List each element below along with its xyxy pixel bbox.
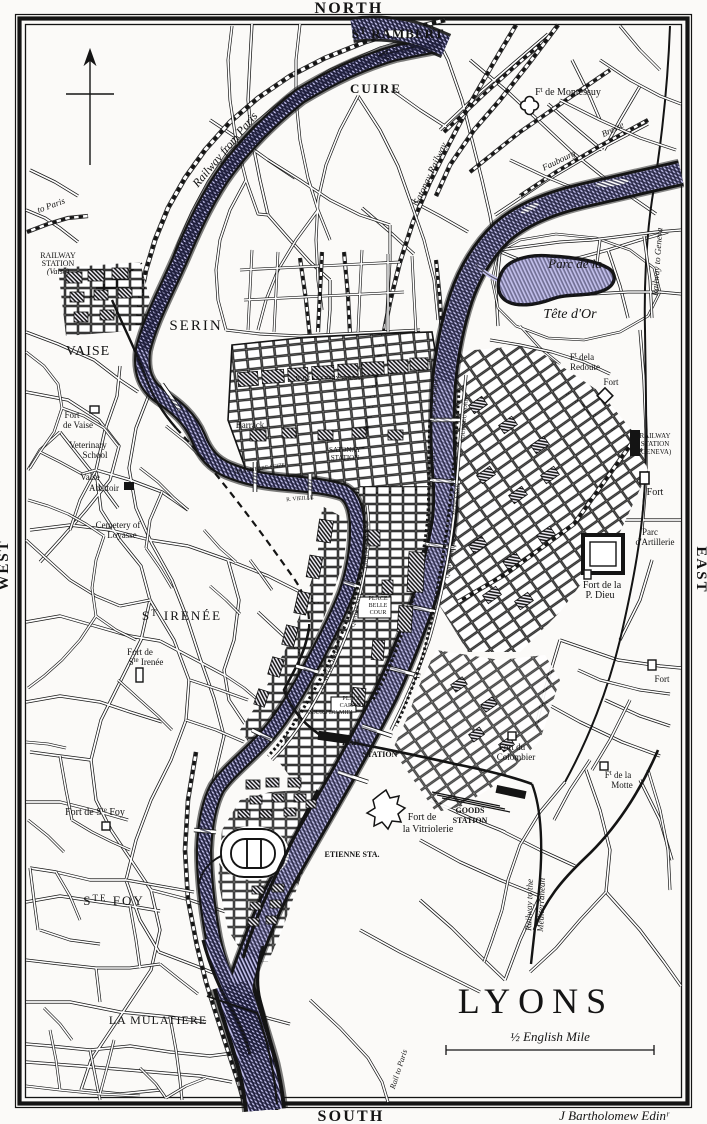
- svg-text:Ft de Montessuy: Ft de Montessuy: [535, 86, 601, 98]
- svg-text:CARNOT: CARNOT: [340, 703, 365, 709]
- svg-text:Redoute: Redoute: [570, 362, 600, 372]
- svg-text:Loyasse: Loyasse: [107, 530, 137, 540]
- svg-text:LYONS: LYONS: [458, 981, 614, 1021]
- svg-text:Fort: Fort: [603, 377, 619, 387]
- svg-text:STATION: STATION: [641, 440, 670, 448]
- svg-text:Cemetery of: Cemetery of: [96, 520, 141, 530]
- svg-text:Tête d'Or: Tête d'Or: [543, 307, 597, 322]
- svg-text:STE FOY: STE FOY: [83, 893, 145, 908]
- svg-text:Fort: Fort: [647, 487, 664, 498]
- svg-text:Fort du: Fort du: [499, 742, 526, 752]
- svg-text:Parc de la: Parc de la: [547, 256, 602, 271]
- svg-text:GOODS: GOODS: [456, 806, 485, 815]
- svg-text:Fort de: Fort de: [127, 647, 153, 657]
- svg-text:Motte: Motte: [611, 780, 633, 790]
- svg-text:WEST: WEST: [0, 539, 12, 590]
- svg-text:Ft de la: Ft de la: [605, 769, 631, 780]
- svg-text:STATION: STATION: [453, 816, 488, 825]
- svg-text:Fort: Fort: [654, 674, 670, 684]
- svg-text:COUR: COUR: [370, 610, 387, 616]
- svg-text:Parc: Parc: [642, 527, 658, 537]
- svg-text:SOUTH: SOUTH: [317, 1108, 384, 1124]
- svg-text:de Vaise: de Vaise: [63, 420, 93, 430]
- svg-text:Fort: Fort: [64, 410, 80, 420]
- svg-text:RAILWAY: RAILWAY: [639, 432, 670, 440]
- svg-text:SERIN: SERIN: [169, 318, 222, 334]
- svg-text:Fort de Ste Foy: Fort de Ste Foy: [65, 806, 125, 818]
- svg-text:Mediterranean: Mediterranean: [535, 877, 547, 933]
- svg-text:Ft dela: Ft dela: [570, 351, 594, 362]
- svg-text:½ English Mile: ½ English Mile: [510, 1029, 590, 1044]
- svg-text:(Vaise): (Vaise): [47, 267, 70, 276]
- svg-text:Railway to the: Railway to the: [523, 879, 535, 932]
- svg-text:CUIRE: CUIRE: [350, 81, 402, 96]
- svg-text:VAISE: VAISE: [66, 344, 110, 359]
- svg-text:Barrack: Barrack: [236, 420, 265, 430]
- svg-text:d'Artillerie: d'Artillerie: [635, 537, 674, 547]
- svg-text:SATONAY: SATONAY: [329, 446, 361, 454]
- svg-text:BELLE: BELLE: [369, 603, 388, 609]
- svg-text:LA MULATIERE: LA MULATIERE: [109, 1013, 207, 1027]
- svg-text:P. Dieu: P. Dieu: [586, 590, 615, 601]
- svg-text:PLACE: PLACE: [342, 696, 361, 702]
- svg-text:Fort de: Fort de: [408, 812, 437, 823]
- svg-text:J Bartholomew Edinʳ: J Bartholomew Edinʳ: [559, 1108, 670, 1123]
- svg-text:ETIENNE STA.: ETIENNE STA.: [325, 850, 380, 859]
- svg-text:EAST: EAST: [693, 546, 707, 593]
- svg-text:(GENEVA): (GENEVA): [639, 448, 672, 456]
- svg-text:STATION: STATION: [331, 454, 360, 462]
- svg-text:Abattoir: Abattoir: [89, 483, 119, 493]
- svg-text:la Vitriolerie: la Vitriolerie: [403, 824, 454, 835]
- svg-text:Veterinary: Veterinary: [69, 440, 107, 450]
- svg-text:RAIL: RAIL: [342, 738, 362, 747]
- svg-text:NORTH: NORTH: [314, 0, 383, 17]
- svg-text:Bⁱ DE LA CROIX ROUSSE: Bⁱ DE LA CROIX ROUSSE: [296, 374, 365, 382]
- svg-text:Colombier: Colombier: [497, 752, 536, 762]
- svg-text:School: School: [82, 450, 108, 460]
- svg-text:STATION: STATION: [363, 750, 398, 759]
- svg-text:Vaise: Vaise: [80, 472, 100, 482]
- svg-text:COURS DU MIDI: COURS DU MIDI: [307, 710, 352, 716]
- svg-text:PLACE: PLACE: [368, 596, 387, 602]
